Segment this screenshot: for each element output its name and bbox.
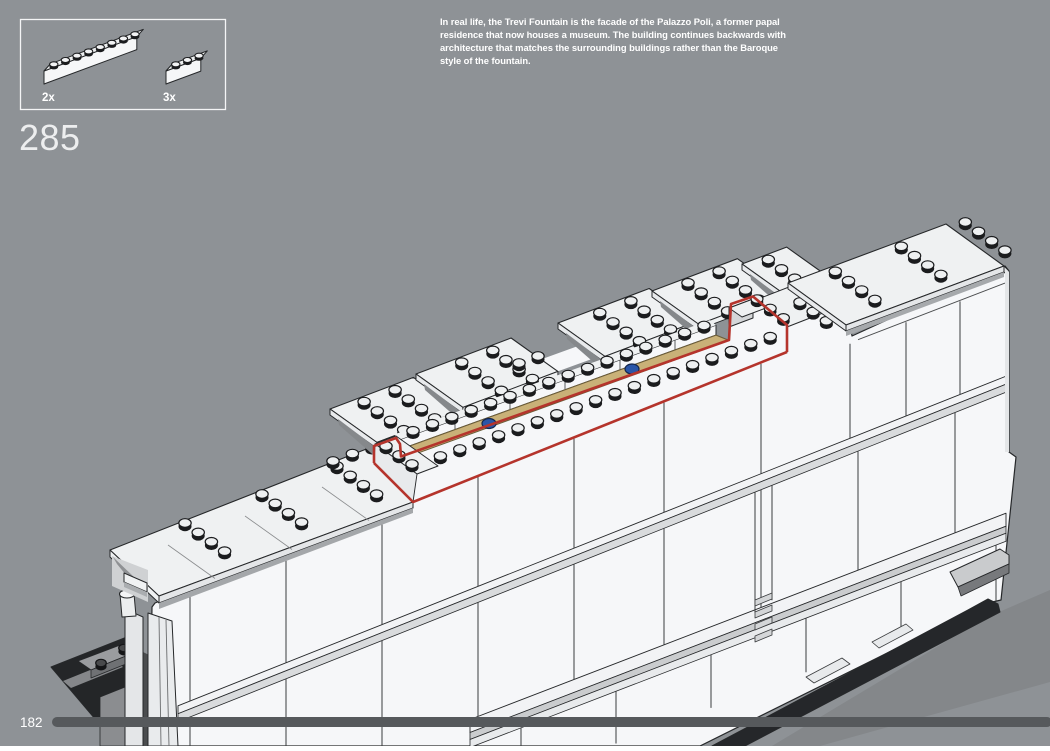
svg-text:3x: 3x: [163, 92, 176, 104]
svg-text:285: 285: [19, 117, 81, 158]
svg-text:2x: 2x: [42, 92, 55, 104]
svg-text:182: 182: [20, 715, 43, 730]
